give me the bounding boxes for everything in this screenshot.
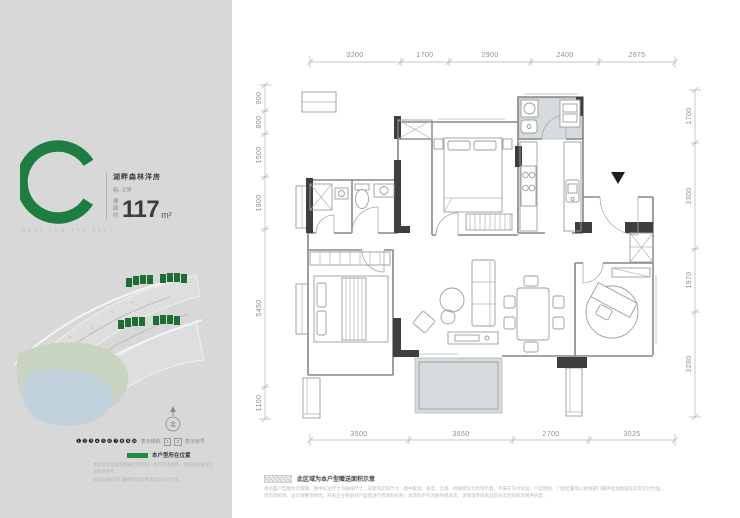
unit-location-swatch xyxy=(127,453,148,458)
dim-top-3: 2900 xyxy=(481,52,498,59)
building-number-icons: ❶❷❸❹❺❻❼❽❾❿ xyxy=(76,438,138,445)
unit-area-prefix: 建面约 xyxy=(113,199,120,220)
bonus-area-label: 此区域为本户型赠送面积示意 xyxy=(297,474,375,483)
unit-area: 建面约 117 m² xyxy=(113,199,172,220)
dim-left-1: 900 xyxy=(256,92,263,105)
unit-area-unit: m² xyxy=(161,210,172,220)
unit-letter-c xyxy=(20,137,96,227)
bonus-area-swatch xyxy=(264,475,292,483)
unit-name: 湖畔森林洋房 xyxy=(113,172,172,182)
master-bedroom-furniture xyxy=(310,252,390,342)
dim-left-4: 1800 xyxy=(256,194,263,211)
unit-info: 湖畔森林洋房 标-3房 建面约 117 m² xyxy=(106,172,172,220)
room-number-box-1: 1 xyxy=(164,438,172,446)
dim-bottom-4: 3025 xyxy=(623,431,640,438)
dim-bottom-3: 2700 xyxy=(542,431,559,438)
tagline: BEST FOR THE BEST xyxy=(22,228,115,234)
sidebar-disclaimer-line2: 具体以政府部门最终批准文件及实际交付为准。 xyxy=(93,476,217,483)
unit-area-value: 117 xyxy=(122,200,159,220)
sidebar-disclaimer-line1: 本区位示意图非精确比例绘制，项目周边道路、景观及配套等信息仅供参考， xyxy=(93,461,217,476)
dim-top-5: 2675 xyxy=(628,52,645,59)
sidebar-disclaimer: 本区位示意图非精确比例绘制，项目周边道路、景观及配套等信息仅供参考， 具体以政府… xyxy=(93,461,217,483)
dim-left-5: 5450 xyxy=(256,299,263,316)
dining-room-furniture xyxy=(504,276,564,352)
balcony-shade xyxy=(415,358,502,413)
dim-right-3: 1970 xyxy=(686,271,693,288)
compass-north-icon: 北 xyxy=(162,405,184,435)
dim-bottom-1: 3500 xyxy=(350,431,367,438)
floorplan-page: 湖畔森林洋房 标-3房 建面约 117 m² BEST FOR THE BEST xyxy=(0,0,740,518)
plan-disclaimer-line1: 本页面户型图为示意图，图中标注尺寸为轴线尺寸，非套内实际尺寸；图中家具、家电、洁… xyxy=(264,485,688,492)
room-number-label: 表示房号 xyxy=(185,438,205,445)
dim-right-2: 3300 xyxy=(686,187,693,204)
room-number-box-2: 2 xyxy=(174,438,182,446)
living-room-furniture xyxy=(413,260,498,344)
dim-left-2: 800 xyxy=(256,116,263,129)
study-room-furniture xyxy=(585,268,650,338)
dim-top-1: 3200 xyxy=(346,52,363,59)
dim-right-1: 1700 xyxy=(686,107,693,124)
dim-left-6: 1100 xyxy=(256,395,263,412)
dim-left-3: 1500 xyxy=(256,146,263,163)
dim-right-4: 3280 xyxy=(686,355,693,372)
floor-plan-drawing: 3200 1700 2900 2400 2675 3500 3650 2700 … xyxy=(232,0,740,518)
compass-north-label: 北 xyxy=(170,421,176,429)
unit-type: 标-3房 xyxy=(113,185,172,194)
dim-top-4: 2400 xyxy=(556,52,573,59)
map-legend-row: ❶❷❸❹❺❻❼❽❾❿ 表示楼栋 1 2 表示房号 xyxy=(76,438,205,446)
unit-location-label: 本户型所在位置 xyxy=(152,451,191,459)
bonus-area-legend: 此区域为本户型赠送面积示意 xyxy=(264,474,375,483)
building-number-label: 表示楼栋 xyxy=(141,438,161,445)
site-plan-map xyxy=(10,242,220,427)
bedroom2-furniture xyxy=(434,138,512,230)
plan-disclaimer: 本页面户型图为示意图，图中标注尺寸为轴线尺寸，非套内实际尺寸；图中家具、家电、洁… xyxy=(264,485,688,500)
dim-bottom-2: 3650 xyxy=(452,431,469,438)
unit-location-legend: 本户型所在位置 xyxy=(127,451,191,459)
left-info-panel: 湖畔森林洋房 标-3房 建面约 117 m² BEST FOR THE BEST xyxy=(0,0,232,518)
dim-top-2: 1700 xyxy=(416,52,433,59)
kitchen-fixtures xyxy=(520,142,581,231)
plan-disclaimer-line2: 因市政规划、设计调整等原因，开发企业保留对户型图进行修改的权利；本资料不作为要约… xyxy=(264,492,688,499)
entry-direction-marker xyxy=(611,172,625,184)
